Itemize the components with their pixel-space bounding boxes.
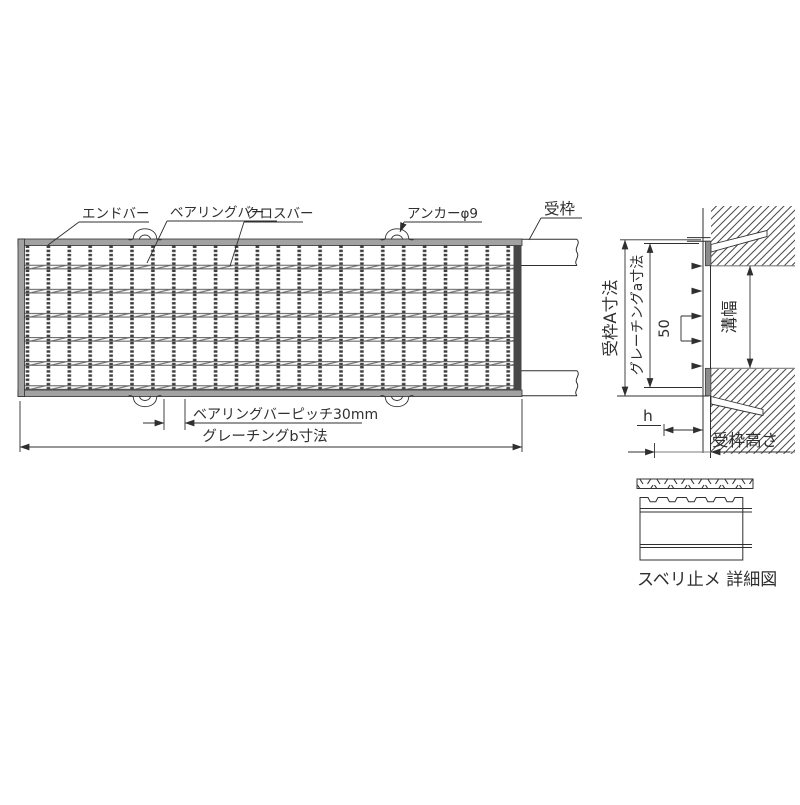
dim-crossbar-pitch-50: 50 (657, 319, 673, 337)
bottom-end-band (18, 390, 522, 397)
dim-grating-a: グレーチングa寸法 (630, 255, 646, 376)
dim-grating-b: グレーチングb寸法 (202, 428, 327, 445)
label-end-bar: エンドバー (82, 206, 150, 222)
grating-technical-drawing: エンドバー ベアリングバー クロスバー アンカーφ9 受枠 ベアリングバーピッチ… (0, 0, 800, 800)
top-end-band (18, 239, 522, 246)
label-anchor-phi9: アンカーφ9 (407, 206, 478, 222)
drawing-canvas: エンドバー ベアリングバー クロスバー アンカーφ9 受枠 ベアリングバーピッチ… (0, 0, 800, 800)
dim-groove-width: 溝幅 (720, 301, 739, 334)
dim-h: h (643, 407, 653, 425)
grating-grid (25, 246, 514, 391)
label-cross-bar: クロスバー (246, 206, 314, 222)
dim-bearing-bar-pitch: ベアリングバーピッチ30mm (193, 407, 378, 423)
right-end-bar (514, 245, 522, 390)
detail-caption: スベリ止メ 詳細図 (637, 570, 777, 590)
left-end-bar (18, 239, 25, 397)
frame-angle-bottom (705, 368, 711, 396)
dim-frame-height: 受枠高さ (712, 431, 778, 450)
serrated-bar-top-view (637, 479, 753, 489)
label-frame: 受枠 (544, 200, 575, 218)
dim-frame-a: 受枠A寸法 (601, 279, 620, 356)
